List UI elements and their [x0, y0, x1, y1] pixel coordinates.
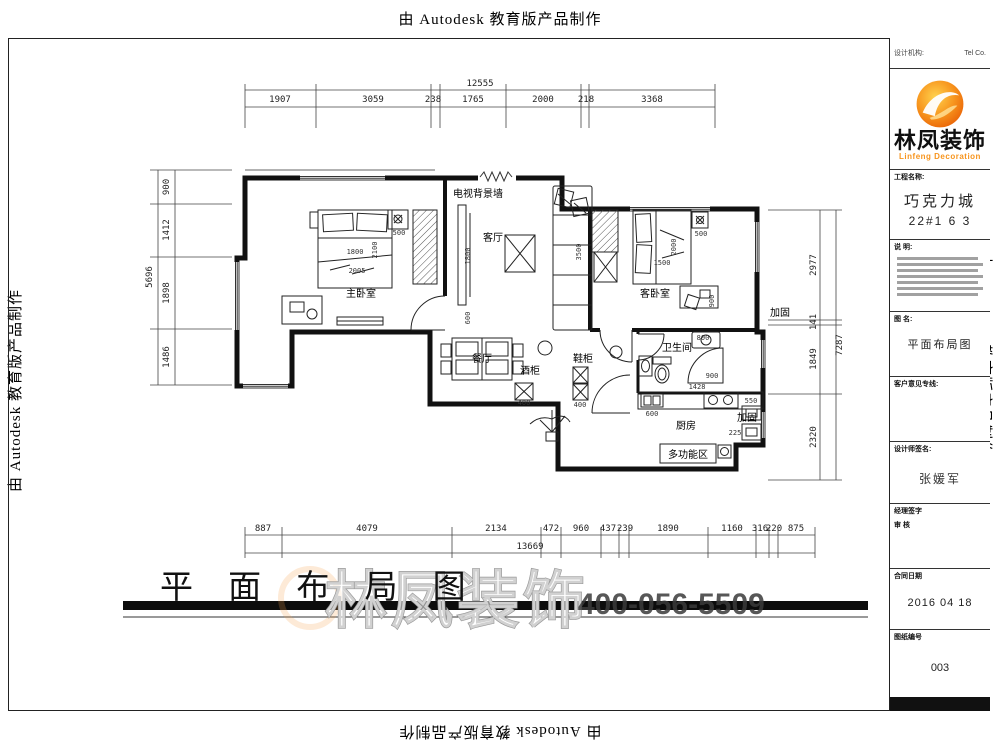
designer-section: 设计师签名: 张媛军 — [890, 442, 990, 504]
room-label: 餐厅 — [472, 352, 492, 365]
dim-seg: 239 — [617, 524, 633, 534]
drawing-name-label: 图 名: — [894, 314, 986, 324]
dim-seg: 2977 — [809, 254, 819, 276]
dim-total: 7287 — [835, 334, 845, 356]
room-label: 客卧室 — [640, 287, 670, 300]
room-label: 多功能区 — [668, 448, 708, 461]
titleblock-bottom-bar — [890, 697, 990, 711]
inner-dim: 2005 — [349, 267, 366, 275]
dim-seg: 4079 — [356, 524, 378, 534]
brand-name: 林凤装饰 — [894, 130, 986, 152]
dim-total: 5696 — [145, 266, 155, 288]
dim-seg: 1765 — [462, 95, 484, 105]
hotline-section: 客户意见专线: — [890, 377, 990, 442]
dim-seg: 900 — [162, 179, 172, 195]
room-label: 鞋柜 — [573, 352, 593, 365]
date-section: 合同日期 2016 04 18 — [890, 569, 990, 630]
project-unit: 22#1 6 3 — [894, 214, 986, 228]
inner-dim: 225 — [729, 429, 742, 437]
inner-dim: 1800 — [464, 248, 472, 265]
manager-label: 经理签字 — [894, 506, 986, 516]
dim-seg: 2134 — [485, 524, 507, 534]
dim-seg: 887 — [255, 524, 271, 534]
date-label: 合同日期 — [894, 571, 986, 581]
project-section: 工程名称: 巧克力城 22#1 6 3 — [890, 170, 990, 240]
dim-seg: 1898 — [162, 282, 172, 304]
dim-seg: 437 — [600, 524, 616, 534]
floorplan-drawing: 林凤装饰 400-056-5509 平 面 布 局 图 125551907305… — [0, 0, 1000, 750]
dim-seg: 1412 — [162, 219, 172, 241]
dining-furniture — [441, 338, 588, 441]
dim-seg: 875 — [788, 524, 804, 534]
dim-seg: 220 — [766, 524, 782, 534]
room-label: 电视背景墙 — [453, 187, 503, 200]
room-label: 客厅 — [483, 231, 503, 244]
date-value: 2016 04 18 — [894, 597, 986, 609]
inner-dim: 2100 — [371, 242, 379, 259]
inner-dim: 1500 — [654, 259, 671, 267]
dim-seg: 1849 — [809, 348, 819, 370]
dim-seg: 960 — [573, 524, 589, 534]
inner-dim: 800 — [697, 334, 710, 342]
agency-label: 设计机构: — [894, 48, 924, 58]
description-section: 说 明: — [890, 240, 990, 312]
inner-dim: 600 — [646, 410, 659, 418]
dim-seg: 1890 — [657, 524, 679, 534]
dim-seg: 472 — [543, 524, 559, 534]
room-label: 加固 — [770, 307, 790, 319]
inner-dim: 550 — [745, 397, 758, 405]
inner-dim: 400 — [574, 401, 587, 409]
dim-total: 13669 — [516, 542, 543, 552]
room-label: 厨房 — [676, 419, 696, 432]
title-area: 林凤装饰 400-056-5509 平 面 布 局 图 — [123, 567, 868, 636]
titleblock-header: 设计机构: Tel Co. — [890, 38, 990, 69]
inner-dim: 900 — [706, 372, 719, 380]
project-label: 工程名称: — [894, 172, 986, 182]
dim-seg: 2000 — [532, 95, 554, 105]
watermark-phone: 400-056-5509 — [578, 588, 765, 621]
dim-seg: 3368 — [641, 95, 663, 105]
project-name: 巧克力城 — [894, 190, 986, 211]
room-label: 卫生间 — [662, 341, 692, 354]
sheet-number-value: 003 — [894, 662, 986, 674]
designer-signature: 张媛军 — [894, 470, 986, 487]
description-label: 说 明: — [894, 242, 986, 252]
dim-seg: 218 — [578, 95, 594, 105]
company-logo-block: 林凤装饰 Linfeng Decoration — [890, 69, 990, 170]
inner-dim: 3500 — [575, 244, 583, 261]
dim-seg: 3059 — [362, 95, 384, 105]
hotline-label: 客户意见专线: — [894, 379, 986, 389]
inner-dim: 2000 — [670, 239, 678, 256]
sheet-number-section: 图纸编号 003 — [890, 630, 990, 697]
designer-label: 设计师签名: — [894, 444, 986, 454]
linfeng-phoenix-icon — [912, 78, 968, 130]
doors — [411, 296, 664, 413]
dimension-lines — [150, 84, 842, 558]
dim-seg: 1907 — [269, 95, 291, 105]
inner-dim: 500 — [393, 229, 406, 237]
dim-seg: 2320 — [809, 426, 819, 448]
manager-section: 经理签字 审 核 — [890, 504, 990, 569]
title-block: 设计机构: Tel Co. 林凤装饰 Linfeng Decoration 工程… — [889, 38, 990, 711]
tel-label: Tel Co. — [964, 50, 986, 57]
description-text-lines — [894, 257, 986, 296]
room-label: 加固 — [737, 412, 757, 424]
room-label: 酒柜 — [520, 364, 540, 377]
inner-dim: 500 — [695, 230, 708, 238]
room-label: 主卧室 — [346, 287, 376, 300]
inner-dim: 400 — [518, 399, 531, 407]
inner-dim: 600 — [464, 312, 472, 325]
dim-total: 12555 — [466, 79, 493, 89]
dim-seg: 1160 — [721, 524, 743, 534]
inner-dim: 1428 — [689, 383, 706, 391]
dim-seg: 1486 — [162, 346, 172, 368]
dim-seg: 141 — [809, 314, 819, 330]
dim-seg: 238 — [425, 95, 441, 105]
drawing-name-value: 平面布局图 — [894, 336, 986, 352]
inner-dim: 1800 — [347, 248, 364, 256]
drawing-title: 平 面 布 局 图 — [160, 568, 479, 605]
inner-dim: 900 — [708, 295, 716, 308]
review-label: 审 核 — [894, 520, 986, 530]
brand-name-en: Linfeng Decoration — [899, 152, 981, 161]
drawing-name-section: 图 名: 平面布局图 — [890, 312, 990, 377]
floorplan-sheet: { "banners": { "top": "由 Autodesk 教育版产品制… — [0, 0, 1000, 750]
sheet-number-label: 图纸编号 — [894, 632, 986, 642]
